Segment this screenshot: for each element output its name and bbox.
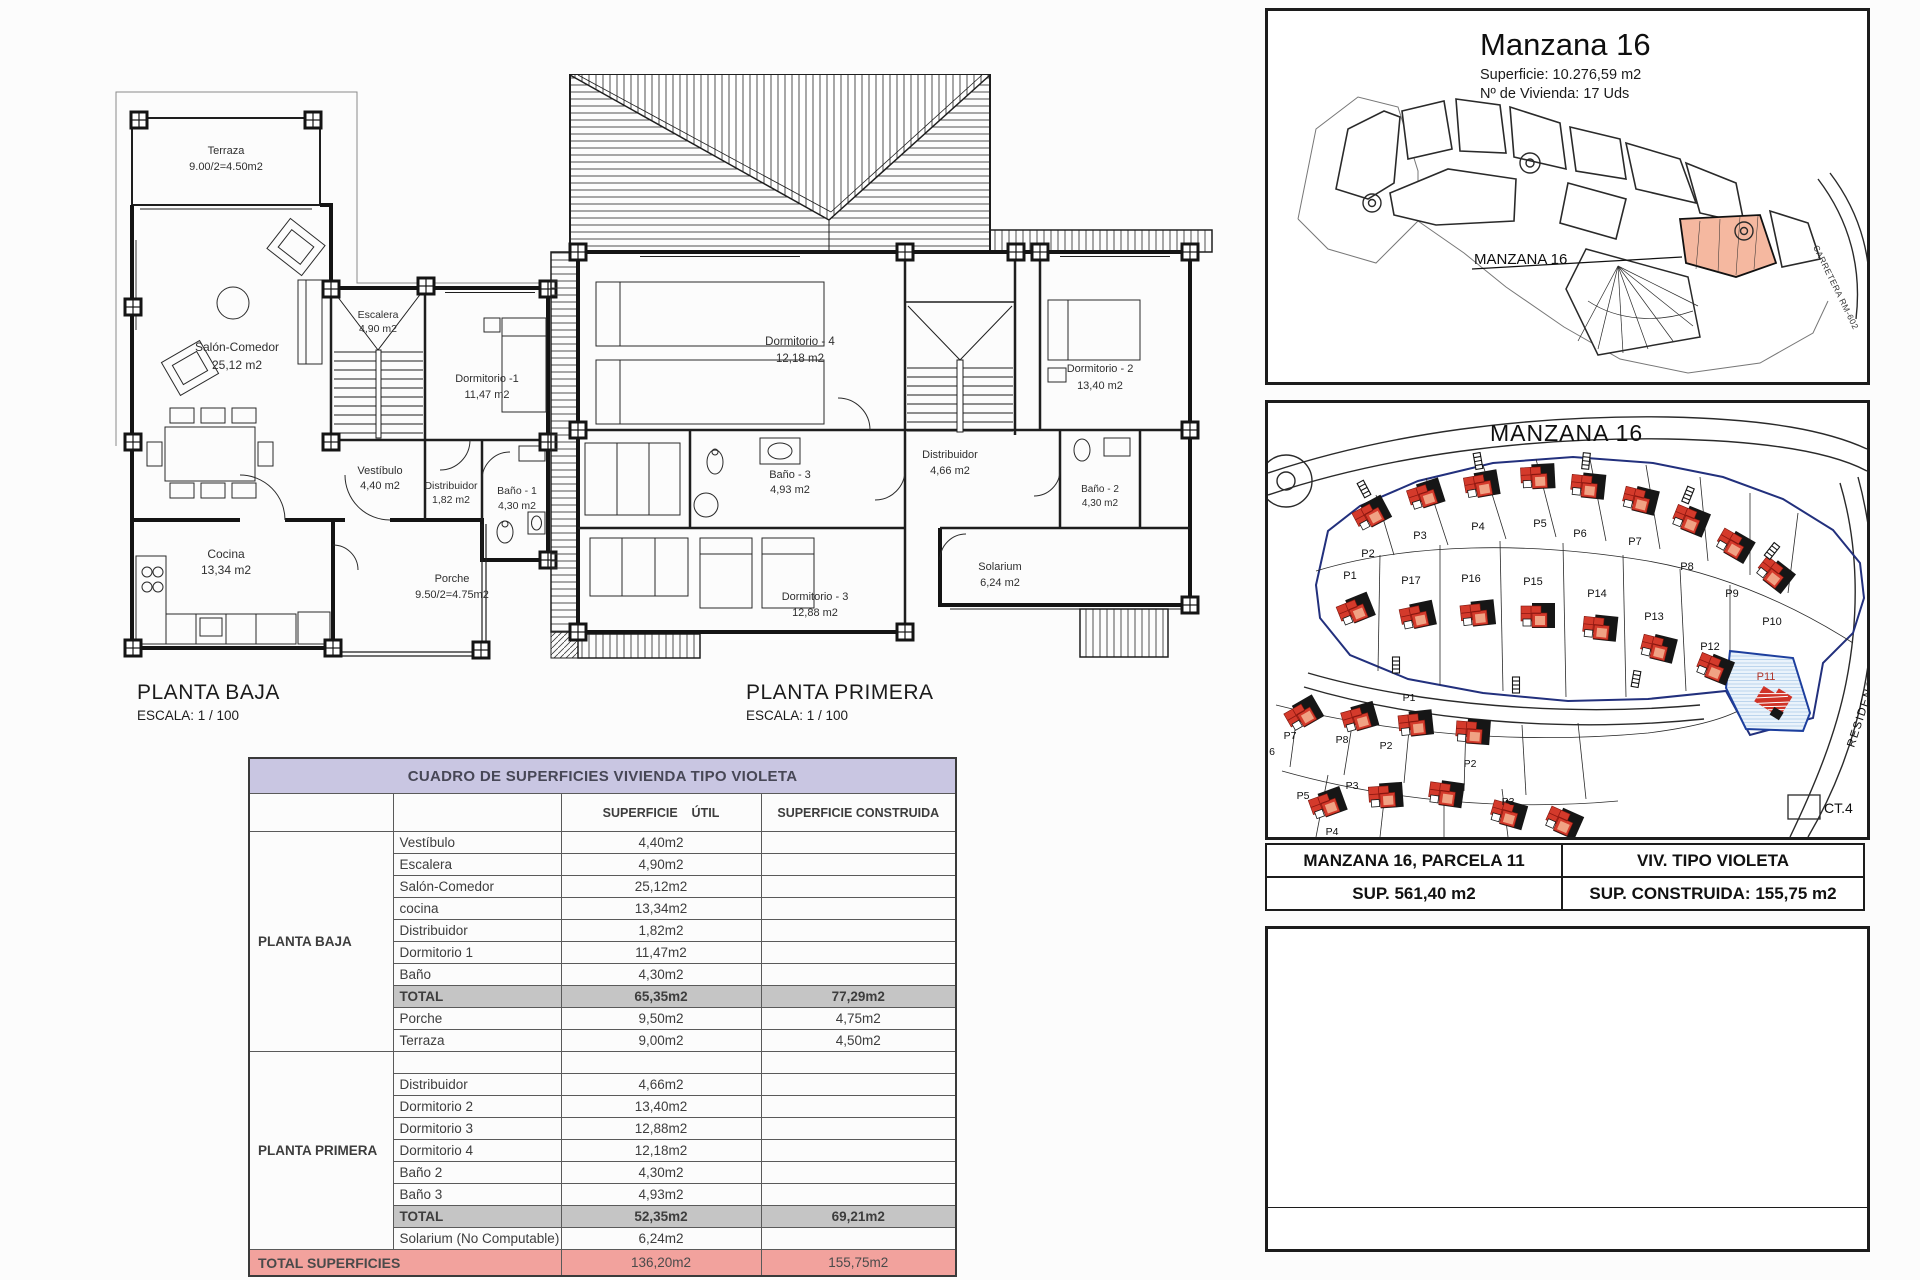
detail-panel: P2 P3 P4 P5 P6 P7 P8 P9 P10 P1 P17 P16 P… — [1265, 400, 1870, 840]
svg-text:P14: P14 — [1587, 588, 1607, 600]
svg-text:13,40 m2: 13,40 m2 — [1077, 380, 1123, 392]
svg-text:P10: P10 — [1762, 616, 1782, 628]
overview-panel: Manzana 16 Superficie: 10.276,59 m2 Nº d… — [1265, 8, 1870, 385]
svg-text:Solarium: Solarium — [978, 561, 1021, 573]
parcela-cell: MANZANA 16, PARCELA 11 — [1265, 843, 1563, 878]
svg-text:9.50/2=4.75m2: 9.50/2=4.75m2 — [415, 589, 489, 601]
stairs-upper — [905, 302, 1015, 432]
svg-text:13,34 m2: 13,34 m2 — [201, 563, 251, 577]
structural-posts — [125, 112, 556, 658]
svg-text:Baño - 2: Baño - 2 — [1081, 484, 1119, 495]
sup-cell: SUP. 561,40 m2 — [1265, 878, 1563, 911]
overview-map: Manzana 16 Superficie: 10.276,59 m2 Nº d… — [1268, 11, 1867, 382]
title-block-box — [1265, 926, 1870, 1252]
svg-text:Dormitorio - 4: Dormitorio - 4 — [765, 336, 835, 348]
svg-text:P1: P1 — [1343, 570, 1356, 582]
overview-viviendas: Nº de Vivienda: 17 Uds — [1480, 86, 1629, 102]
title-block-divider — [1268, 1207, 1867, 1208]
planta-baja-plan: Terraza 9.00/2=4.50m2 Salón-Comedor 25,1… — [60, 60, 580, 760]
room-label: Baño - 1 — [497, 485, 537, 497]
svg-text:Dormitorio - 3: Dormitorio - 3 — [782, 591, 849, 603]
svg-text:P13: P13 — [1644, 611, 1664, 623]
spacer-row: PLANTA PRIMERA — [249, 1052, 956, 1074]
svg-text:P5: P5 — [1533, 518, 1546, 530]
room-label: Vestíbulo — [357, 465, 402, 477]
table-title: CUADRO DE SUPERFICIES VIVIENDA TIPO VIOL… — [249, 758, 956, 794]
table-row: PLANTA BAJA Vestíbulo4,40m2 — [249, 832, 956, 854]
svg-text:P17: P17 — [1401, 575, 1421, 587]
planta-primera-caption: PLANTA PRIMERA ESCALA: 1 / 100 — [746, 681, 934, 723]
svg-text:11,47 m2: 11,47 m2 — [464, 389, 509, 401]
surface-table: CUADRO DE SUPERFICIES VIVIENDA TIPO VIOL… — [248, 757, 957, 1277]
residencial-label: RESIDENCIAL CO — [1845, 633, 1867, 749]
svg-text:P2: P2 — [1464, 758, 1477, 770]
room-label: Salón-Comedor — [195, 340, 279, 354]
svg-text:P12: P12 — [1700, 641, 1720, 653]
plan-scale: ESCALA: 1 / 100 — [746, 708, 934, 723]
upper-furniture — [585, 282, 1140, 608]
info-row-1: MANZANA 16, PARCELA 11 VIV. TIPO VIOLETA — [1265, 843, 1870, 878]
plan-title: PLANTA PRIMERA — [746, 681, 934, 705]
svg-text:Dormitorio - 2: Dormitorio - 2 — [1067, 363, 1134, 375]
room-label: Cocina — [207, 547, 245, 561]
room-label: Dormitorio -1 — [455, 373, 519, 385]
room-labels: Terraza 9.00/2=4.50m2 Salón-Comedor 25,1… — [189, 145, 537, 601]
svg-text:4,40 m2: 4,40 m2 — [360, 480, 400, 492]
group-planta-primera: PLANTA PRIMERA — [249, 1052, 393, 1250]
planta-baja-caption: PLANTA BAJA ESCALA: 1 / 100 — [137, 681, 280, 723]
svg-text:P5: P5 — [1297, 790, 1310, 802]
svg-text:1,82 m2: 1,82 m2 — [432, 494, 470, 506]
svg-text:25,12 m2: 25,12 m2 — [212, 358, 262, 372]
svg-text:P3: P3 — [1413, 530, 1426, 542]
svg-text:Baño - 3: Baño - 3 — [769, 469, 811, 481]
room-label: Porche — [435, 573, 470, 585]
svg-text:6,24 m2: 6,24 m2 — [980, 577, 1020, 589]
room-label: Escalera — [358, 309, 399, 321]
tipo-cell: VIV. TIPO VIOLETA — [1563, 843, 1865, 878]
svg-text:12,88 m2: 12,88 m2 — [792, 607, 838, 619]
svg-text:P7: P7 — [1284, 730, 1297, 742]
highlighted-block — [1680, 215, 1776, 277]
planta-primera-plan: Dormitorio - 4 12,18 m2 Dormitorio - 2 1… — [540, 50, 1260, 720]
svg-text:P7: P7 — [1628, 536, 1641, 548]
svg-text:12,18 m2: 12,18 m2 — [776, 353, 824, 365]
info-row-2: SUP. 561,40 m2 SUP. CONSTRUIDA: 155,75 m… — [1265, 878, 1870, 911]
svg-text:P4: P4 — [1326, 826, 1339, 837]
overview-superficie: Superficie: 10.276,59 m2 — [1480, 67, 1641, 83]
plan-title: PLANTA BAJA — [137, 681, 280, 705]
grand-total-row: TOTAL SUPERFICIES 136,20m2 155,75m2 — [249, 1250, 956, 1277]
architectural-sheet: { "document": { "pb_caption": "PLANTA BA… — [0, 0, 1920, 1280]
svg-text:P2: P2 — [1361, 548, 1374, 560]
detail-map: P2 P3 P4 P5 P6 P7 P8 P9 P10 P1 P17 P16 P… — [1268, 403, 1867, 837]
svg-text:P2: P2 — [1380, 740, 1393, 752]
overview-title: Manzana 16 — [1480, 27, 1651, 62]
svg-text:4,90 m2: 4,90 m2 — [359, 323, 397, 335]
svg-text:P15: P15 — [1523, 576, 1543, 588]
svg-text:4,93 m2: 4,93 m2 — [770, 484, 810, 496]
svg-text:4,30 m2: 4,30 m2 — [1082, 498, 1119, 509]
block-label: MANZANA 16 — [1474, 251, 1567, 268]
detail-title: MANZANA 16 — [1490, 420, 1643, 446]
svg-text:P8: P8 — [1336, 734, 1349, 746]
upper-bath-fixtures — [694, 438, 1130, 517]
svg-text:P9: P9 — [1725, 588, 1738, 600]
svg-text:4,66 m2: 4,66 m2 — [930, 465, 970, 477]
svg-text:P3: P3 — [1502, 796, 1515, 808]
svg-text:P4: P4 — [1471, 521, 1484, 533]
sup-construida-cell: SUP. CONSTRUIDA: 155,75 m2 — [1563, 878, 1865, 911]
col-header-util: SUPERFICIE ÚTIL — [561, 794, 761, 832]
svg-text:6: 6 — [1269, 746, 1275, 758]
info-tables: MANZANA 16, PARCELA 11 VIV. TIPO VIOLETA… — [1265, 843, 1870, 911]
svg-text:P6: P6 — [1573, 528, 1586, 540]
svg-text:P1: P1 — [1403, 692, 1416, 704]
svg-text:4,30 m2: 4,30 m2 — [498, 500, 536, 512]
svg-text:P16: P16 — [1461, 573, 1481, 585]
svg-text:P8: P8 — [1680, 561, 1693, 573]
svg-text:P11: P11 — [1757, 671, 1776, 683]
svg-text:9.00/2=4.50m2: 9.00/2=4.50m2 — [189, 161, 263, 173]
svg-text:Distribuidor: Distribuidor — [922, 449, 978, 461]
room-label: Terraza — [208, 145, 246, 157]
ct4-label: CT.4 — [1824, 800, 1853, 816]
plan-scale: ESCALA: 1 / 100 — [137, 708, 280, 723]
room-label: Distribuidor — [424, 480, 478, 492]
group-planta-baja: PLANTA BAJA — [249, 832, 393, 1052]
col-header-construida: SUPERFICIE CONSTRUIDA — [761, 794, 956, 832]
room-labels-upper: Dormitorio - 4 12,18 m2 Dormitorio - 2 1… — [765, 336, 1133, 619]
svg-text:P3: P3 — [1346, 780, 1359, 792]
